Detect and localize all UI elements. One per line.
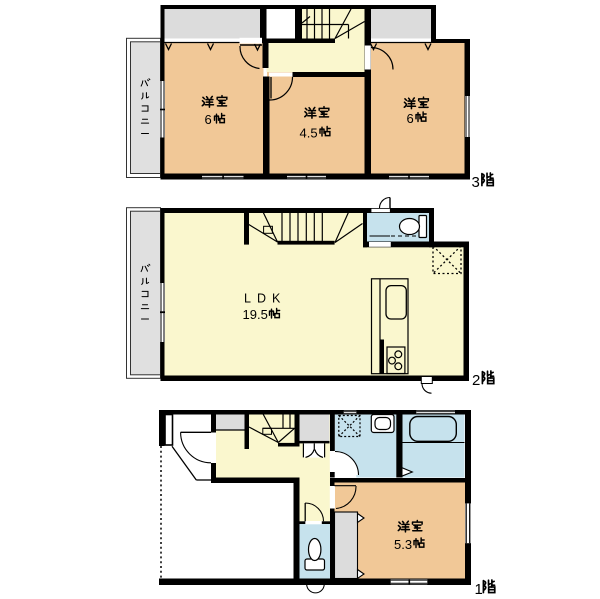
svg-text:19.5: 19.5 [243,307,268,322]
svg-text:2: 2 [472,372,480,389]
svg-text:3: 3 [472,174,480,191]
svg-text:5.3: 5.3 [394,537,412,552]
svg-text:6: 6 [205,112,212,127]
svg-text:LDK: LDK [244,292,286,306]
svg-text:6: 6 [407,111,414,126]
svg-text:4.5: 4.5 [300,126,318,141]
svg-text:1: 1 [475,581,483,598]
